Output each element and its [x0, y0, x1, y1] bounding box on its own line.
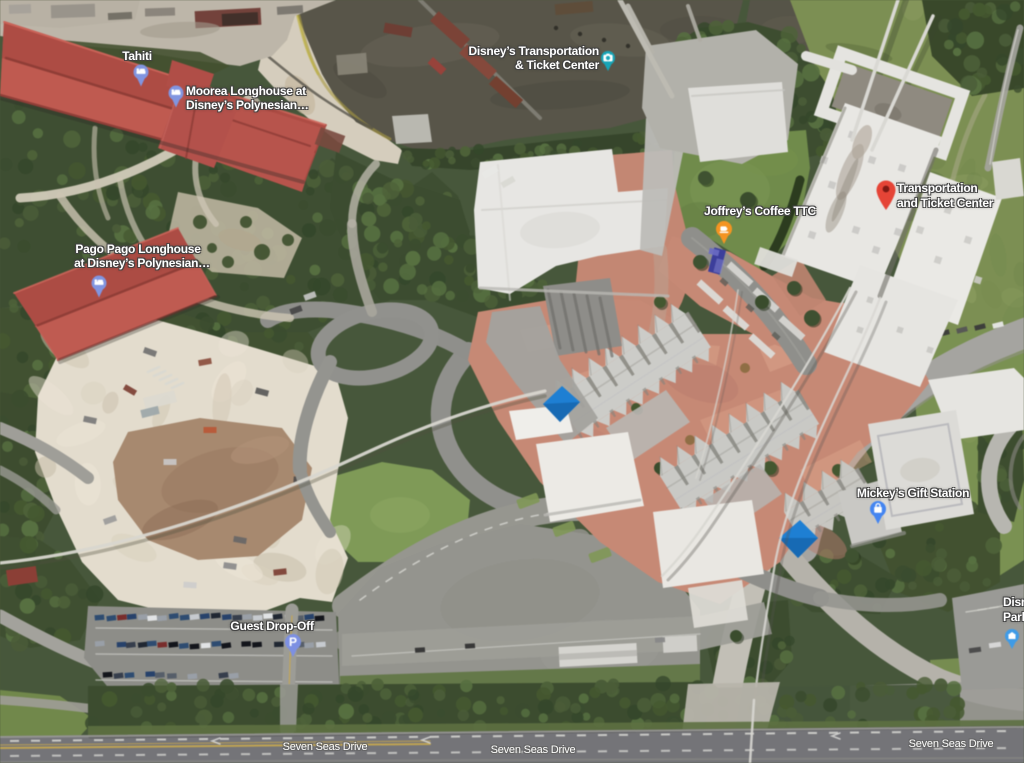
svg-text:P: P [289, 635, 297, 649]
